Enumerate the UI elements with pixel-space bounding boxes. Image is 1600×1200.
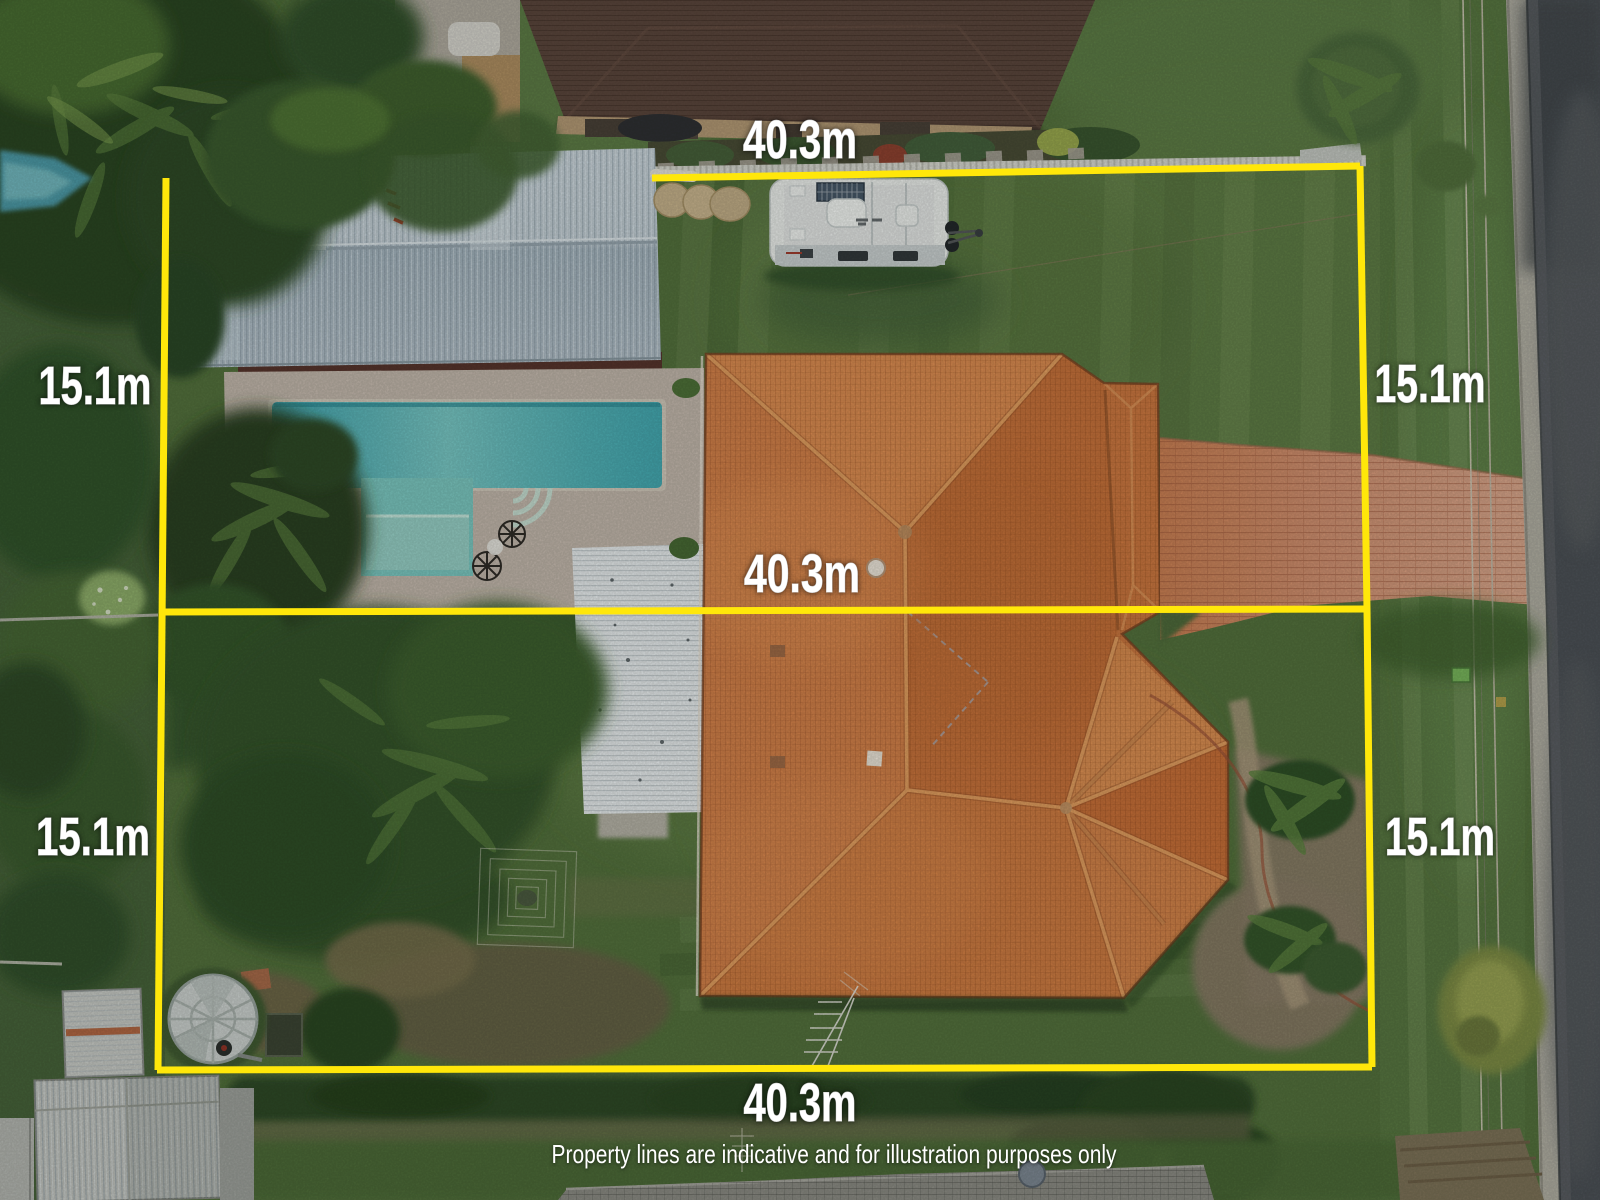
svg-text:40.3m: 40.3m — [744, 1074, 857, 1133]
svg-text:15.1m: 15.1m — [1385, 808, 1495, 867]
svg-text:15.1m: 15.1m — [36, 808, 150, 867]
svg-text:15.1m: 15.1m — [1375, 355, 1486, 414]
svg-text:15.1m: 15.1m — [39, 357, 152, 416]
svg-text:40.3m: 40.3m — [744, 545, 860, 604]
svg-text:40.3m: 40.3m — [743, 111, 857, 170]
svg-text:Property lines are indicative: Property lines are indicative and for il… — [552, 1139, 1117, 1169]
